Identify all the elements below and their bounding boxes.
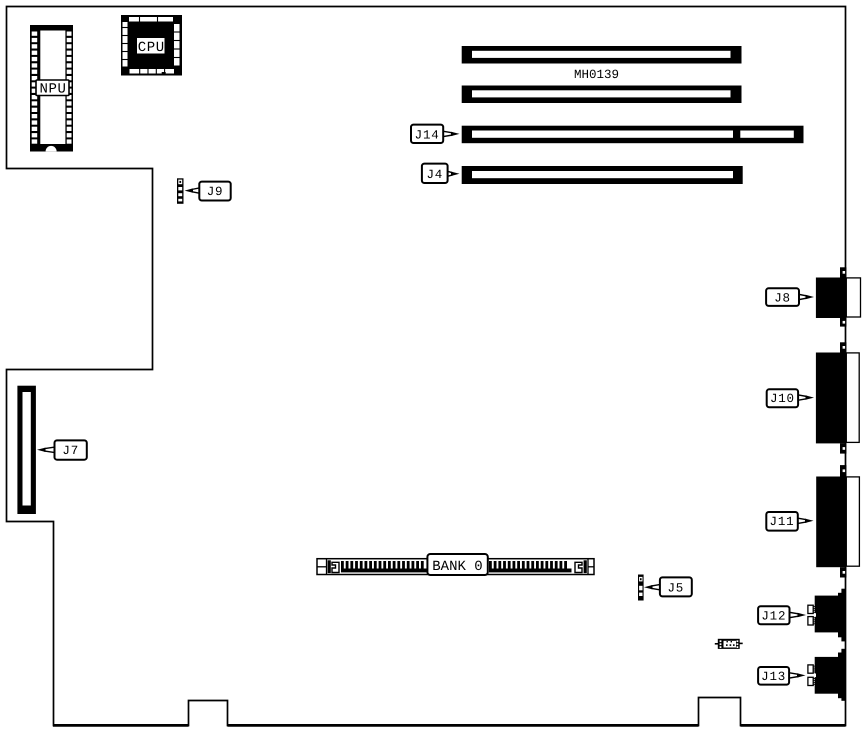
svg-text:J7: J7 [62, 444, 79, 458]
svg-text:J10: J10 [770, 392, 795, 406]
svg-text:J12: J12 [761, 609, 786, 623]
svg-text:J11: J11 [770, 515, 795, 529]
svg-text:MH0139: MH0139 [574, 68, 619, 82]
svg-text:BANK 0: BANK 0 [432, 559, 482, 575]
svg-text:NPU: NPU [39, 82, 66, 98]
svg-text:J8: J8 [774, 291, 791, 305]
svg-text:J9: J9 [207, 185, 224, 199]
svg-text:J5: J5 [667, 582, 684, 596]
svg-text:CPU: CPU [138, 40, 165, 56]
svg-text:J14: J14 [415, 128, 440, 142]
svg-text:J13: J13 [761, 670, 786, 684]
svg-text:J4: J4 [426, 168, 443, 182]
